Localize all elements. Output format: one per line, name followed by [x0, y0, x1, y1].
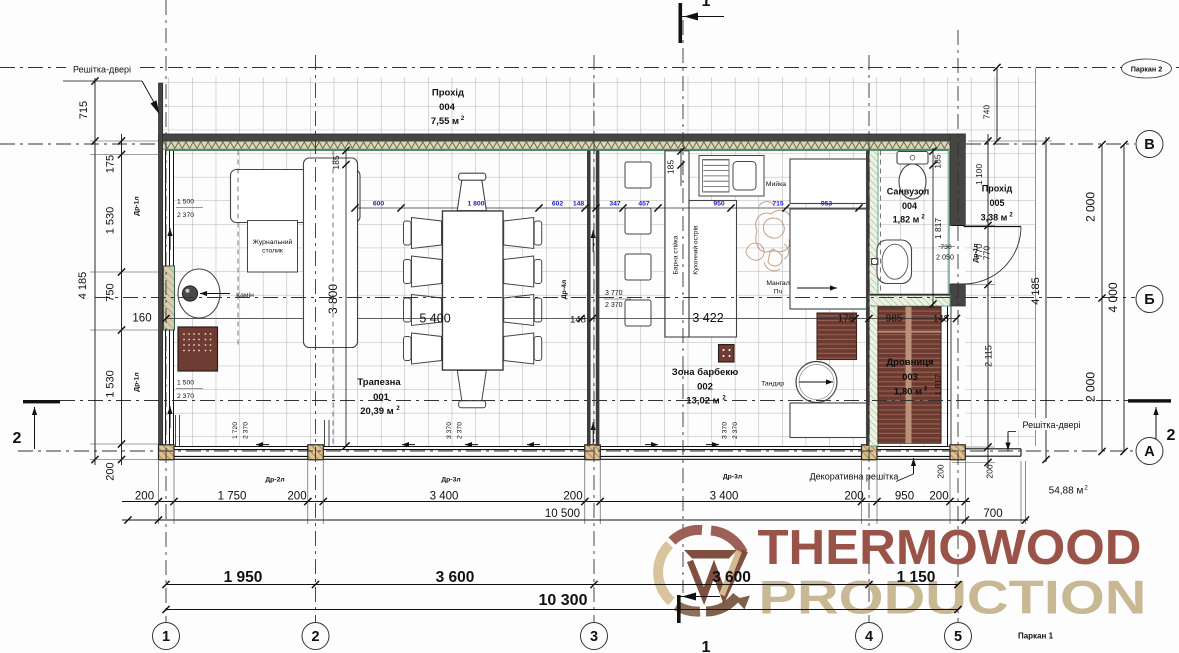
- svg-text:148: 148: [933, 314, 949, 325]
- svg-text:185: 185: [331, 155, 341, 169]
- svg-text:10 300: 10 300: [539, 592, 588, 609]
- svg-text:750: 750: [105, 283, 117, 301]
- svg-text:1 530: 1 530: [105, 370, 117, 398]
- svg-text:Зона барбекю: Зона барбекю: [672, 367, 738, 378]
- svg-text:1,80 м: 1,80 м: [894, 387, 922, 398]
- svg-text:602: 602: [552, 201, 564, 208]
- svg-text:003: 003: [902, 372, 918, 383]
- svg-text:148: 148: [570, 315, 586, 326]
- svg-text:715: 715: [78, 101, 90, 119]
- svg-text:715: 715: [772, 201, 784, 208]
- svg-text:Решітка-двері: Решітка-двері: [1022, 420, 1080, 430]
- svg-text:1: 1: [702, 639, 711, 653]
- svg-text:Дровниця: Дровниця: [886, 357, 933, 368]
- svg-text:2 000: 2 000: [1084, 372, 1098, 402]
- svg-text:Мангал: Мангал: [766, 280, 789, 287]
- svg-text:Паркан 1: Паркан 1: [1018, 632, 1054, 641]
- svg-text:3: 3: [590, 629, 598, 645]
- svg-text:Др-1л: Др-1л: [134, 372, 141, 391]
- svg-text:4 185: 4 185: [1030, 277, 1042, 305]
- svg-text:В: В: [1144, 137, 1154, 153]
- svg-text:2 370: 2 370: [243, 422, 250, 439]
- svg-text:1 750: 1 750: [218, 491, 247, 503]
- svg-text:175: 175: [105, 155, 117, 173]
- svg-text:Трапезна: Трапезна: [357, 377, 401, 388]
- svg-text:Др-1п: Др-1п: [973, 243, 980, 262]
- svg-text:200: 200: [844, 491, 863, 503]
- svg-text:7,55 м: 7,55 м: [431, 116, 459, 127]
- svg-text:2 370: 2 370: [177, 393, 194, 400]
- svg-text:1 800: 1 800: [467, 201, 484, 208]
- svg-text:200: 200: [563, 491, 582, 503]
- svg-text:Декоративна решітка: Декоративна решітка: [810, 472, 899, 482]
- svg-text:2: 2: [311, 629, 319, 645]
- svg-text:3 422: 3 422: [692, 311, 723, 325]
- svg-text:PRODUCTION: PRODUCTION: [759, 571, 1147, 624]
- svg-text:Паркан 2: Паркан 2: [1131, 65, 1162, 74]
- svg-text:1 950: 1 950: [224, 569, 263, 586]
- svg-text:Решітка-двері: Решітка-двері: [73, 65, 131, 75]
- svg-text:2 370: 2 370: [177, 212, 194, 219]
- svg-text:Др-4л: Др-4л: [561, 280, 568, 299]
- svg-text:2 370: 2 370: [457, 422, 464, 439]
- svg-text:200: 200: [936, 464, 946, 478]
- svg-text:Др-3л: Др-3л: [723, 474, 742, 481]
- svg-text:1 530: 1 530: [105, 207, 117, 235]
- svg-text:1 500: 1 500: [177, 199, 194, 206]
- svg-text:004: 004: [439, 102, 456, 113]
- svg-text:200: 200: [287, 491, 306, 503]
- svg-text:3 370: 3 370: [722, 422, 729, 439]
- svg-text:А: А: [1144, 444, 1155, 460]
- svg-text:Прохід: Прохід: [982, 184, 1013, 194]
- svg-text:740: 740: [982, 105, 992, 119]
- svg-text:185: 185: [933, 154, 943, 168]
- svg-text:178: 178: [838, 314, 855, 325]
- svg-text:3,38 м: 3,38 м: [981, 213, 1008, 223]
- svg-text:700: 700: [983, 508, 1002, 520]
- svg-text:1 100: 1 100: [974, 164, 984, 186]
- svg-text:Журнальний: Журнальний: [253, 238, 293, 246]
- svg-text:Кухонний острів: Кухонний острів: [692, 225, 700, 275]
- svg-text:953: 953: [821, 201, 833, 208]
- svg-text:2 000: 2 000: [1084, 192, 1098, 222]
- svg-text:148: 148: [573, 201, 585, 208]
- svg-text:200: 200: [929, 491, 948, 503]
- svg-text:столик: столик: [262, 248, 283, 255]
- svg-text:Пч: Пч: [774, 289, 783, 296]
- svg-text:1 500: 1 500: [177, 380, 194, 387]
- svg-text:Др-3л: Др-3л: [441, 477, 460, 484]
- svg-text:600: 600: [373, 201, 385, 208]
- svg-text:770: 770: [982, 246, 992, 260]
- svg-text:730: 730: [940, 244, 952, 251]
- svg-text:20,39 м: 20,39 м: [360, 406, 393, 417]
- svg-text:2 115: 2 115: [984, 345, 994, 367]
- svg-text:001: 001: [373, 392, 390, 403]
- svg-text:347: 347: [609, 201, 621, 208]
- svg-text:457: 457: [638, 201, 650, 208]
- svg-text:950: 950: [713, 201, 725, 208]
- svg-text:2 370: 2 370: [732, 422, 739, 439]
- svg-text:200: 200: [135, 491, 154, 503]
- svg-text:004: 004: [902, 201, 917, 211]
- svg-text:200: 200: [105, 462, 117, 480]
- svg-text:5: 5: [954, 629, 962, 645]
- svg-text:1: 1: [702, 0, 711, 10]
- svg-text:54,88 м: 54,88 м: [1049, 486, 1084, 497]
- svg-text:1 720: 1 720: [232, 422, 239, 439]
- svg-text:Санвузол: Санвузол: [887, 187, 930, 197]
- svg-text:3 370: 3 370: [446, 422, 453, 439]
- svg-text:3 600: 3 600: [712, 569, 751, 586]
- svg-text:2: 2: [13, 430, 22, 447]
- svg-text:THERMOWOOD: THERMOWOOD: [758, 520, 1142, 575]
- svg-text:1: 1: [162, 629, 170, 645]
- svg-text:3 400: 3 400: [430, 491, 459, 503]
- svg-text:3 600: 3 600: [436, 569, 475, 586]
- svg-text:2 370: 2 370: [605, 302, 623, 309]
- svg-text:13,02 м: 13,02 м: [686, 396, 719, 407]
- svg-text:10 500: 10 500: [545, 508, 580, 520]
- svg-text:1 150: 1 150: [897, 569, 936, 586]
- svg-text:1 817: 1 817: [933, 218, 943, 240]
- svg-text:Др-2л: Др-2л: [265, 477, 284, 484]
- svg-text:2: 2: [1167, 427, 1176, 444]
- svg-text:2 050: 2 050: [936, 253, 954, 262]
- svg-text:160: 160: [132, 313, 151, 325]
- svg-text:4: 4: [865, 629, 873, 645]
- svg-text:Тандир: Тандир: [761, 381, 784, 388]
- svg-text:3 770: 3 770: [605, 290, 623, 297]
- svg-text:Др-1л: Др-1л: [134, 196, 141, 215]
- svg-text:1,82 м: 1,82 м: [893, 215, 920, 225]
- svg-text:002: 002: [697, 382, 713, 393]
- svg-text:5 400: 5 400: [419, 312, 450, 326]
- svg-text:Мийка: Мийка: [766, 180, 786, 188]
- svg-text:185: 185: [666, 160, 676, 174]
- svg-text:4 185: 4 185: [77, 272, 89, 300]
- svg-text:4 000: 4 000: [1106, 282, 1120, 312]
- svg-text:005: 005: [989, 198, 1004, 208]
- svg-text:3 400: 3 400: [710, 491, 739, 503]
- svg-text:3 800: 3 800: [326, 284, 340, 314]
- svg-text:1 817: 1 817: [933, 374, 943, 396]
- svg-text:Прохід: Прохід: [432, 88, 464, 99]
- svg-text:200: 200: [985, 464, 995, 478]
- svg-text:Барна стійка: Барна стійка: [672, 235, 680, 274]
- svg-text:950: 950: [895, 491, 914, 503]
- svg-text:Б: Б: [1144, 292, 1154, 308]
- svg-text:2: 2: [1084, 485, 1088, 492]
- svg-text:985: 985: [886, 314, 903, 325]
